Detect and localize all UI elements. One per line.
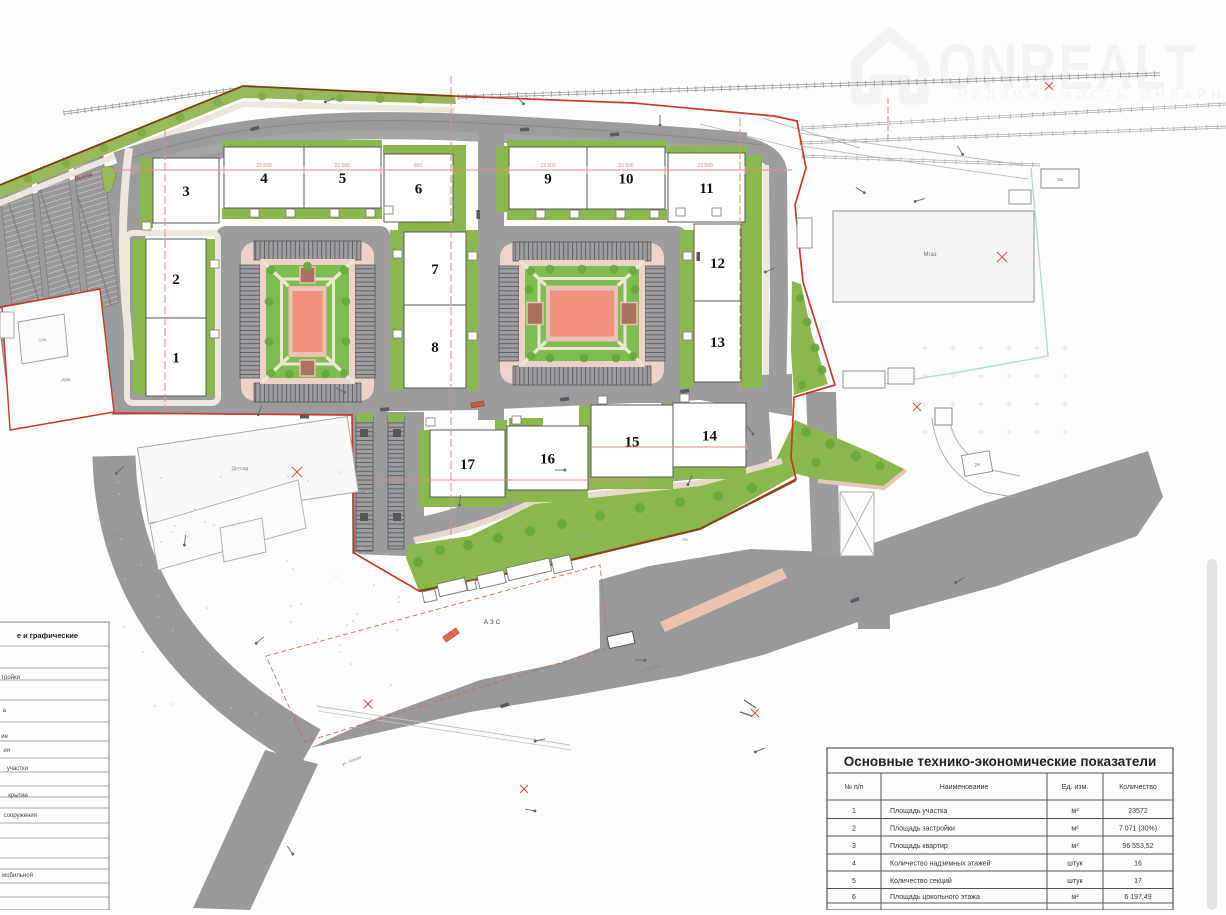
- svg-text:Площадь квартир: Площадь квартир: [890, 843, 948, 850]
- svg-text:1: 1: [172, 350, 180, 366]
- svg-text:Площадь застройки: Площадь застройки: [890, 825, 955, 833]
- svg-text:Площадь цокольного этажа: Площадь цокольного этажа: [890, 894, 980, 901]
- svg-text:Мгаз: Мгаз: [923, 252, 936, 258]
- svg-text:ия: ия: [3, 748, 10, 754]
- svg-text:23 500: 23 500: [256, 163, 272, 169]
- svg-text:11: 11: [699, 181, 713, 197]
- svg-text:7 071 (30%): 7 071 (30%): [1119, 826, 1157, 833]
- svg-text:е и графические: е и графические: [17, 631, 78, 640]
- svg-text:1: 1: [852, 808, 856, 815]
- svg-text:4: 4: [852, 861, 856, 868]
- svg-text:Площадь участка: Площадь участка: [890, 808, 947, 815]
- svg-text:12: 12: [710, 256, 725, 272]
- svg-text:6: 6: [852, 894, 856, 901]
- svg-text:Дом: Дом: [62, 377, 71, 382]
- svg-text:сооружения: сооружения: [4, 813, 37, 819]
- svg-text:10: 10: [619, 171, 634, 187]
- svg-text:16: 16: [540, 451, 556, 467]
- svg-text:Ед. изм.: Ед. изм.: [1062, 784, 1089, 791]
- svg-text:8: 8: [431, 340, 439, 356]
- svg-text:17: 17: [460, 457, 476, 473]
- svg-text:2м: 2м: [974, 462, 980, 468]
- svg-text:штук: штук: [1067, 878, 1083, 885]
- svg-text:600: 600: [414, 163, 423, 169]
- svg-text:Количество секций: Количество секций: [890, 877, 952, 885]
- svg-text:тройки: тройки: [1, 674, 20, 681]
- svg-text:Наименование: Наименование: [940, 784, 989, 791]
- svg-text:15: 15: [625, 434, 640, 450]
- svg-text:23 500: 23 500: [334, 163, 350, 169]
- svg-text:96 553,52: 96 553,52: [1122, 843, 1153, 850]
- svg-text:крытие: крытие: [8, 793, 28, 799]
- svg-text:4: 4: [260, 171, 268, 187]
- svg-text:м²: м²: [1071, 843, 1079, 850]
- svg-text:Количество надземных этажей: Количество надземных этажей: [890, 860, 991, 868]
- svg-text:Детсад: Детсад: [232, 466, 249, 472]
- svg-text:Основные технико-экономические: Основные технико-экономические показател…: [844, 754, 1157, 769]
- svg-text:НЕДВИЖИМОСТЬ ОНЛАЙН: НЕДВИЖИМОСТЬ ОНЛАЙН: [958, 87, 1226, 102]
- svg-text:5: 5: [852, 878, 856, 885]
- svg-text:13: 13: [710, 335, 725, 351]
- svg-text:7: 7: [431, 262, 439, 278]
- svg-text:17: 17: [1134, 878, 1142, 885]
- svg-text:2: 2: [172, 272, 180, 288]
- svg-text:23 500: 23 500: [540, 163, 556, 169]
- svg-text:6: 6: [415, 181, 423, 197]
- svg-text:5: 5: [339, 171, 347, 187]
- svg-text:23572: 23572: [1128, 808, 1148, 815]
- svg-text:А З С: А З С: [484, 619, 501, 626]
- svg-text:сущ.: сущ.: [38, 337, 47, 342]
- svg-text:мобильной: мобильной: [2, 872, 33, 879]
- svg-text:9: 9: [544, 171, 552, 187]
- svg-text:Зм: Зм: [1057, 177, 1063, 182]
- svg-text:16: 16: [1134, 861, 1142, 868]
- svg-text:2: 2: [852, 826, 856, 833]
- svg-text:14: 14: [702, 428, 718, 444]
- svg-text:3: 3: [182, 184, 190, 200]
- svg-text:23 500: 23 500: [697, 163, 713, 169]
- svg-text:2м: 2м: [579, 533, 584, 538]
- svg-text:Зм: Зм: [682, 537, 688, 542]
- svg-text:участки: участки: [7, 766, 28, 772]
- svg-text:3: 3: [852, 843, 856, 850]
- svg-text:м²: м²: [1071, 894, 1079, 901]
- svg-text:штук: штук: [1067, 861, 1083, 868]
- svg-text:6 197,49: 6 197,49: [1124, 894, 1151, 901]
- svg-text:23 500: 23 500: [618, 163, 634, 169]
- svg-text:№ п/п: № п/п: [845, 784, 864, 791]
- svg-text:ие: ие: [1, 734, 8, 740]
- svg-text:м²: м²: [1071, 826, 1079, 833]
- svg-text:Количество: Количество: [1119, 784, 1157, 791]
- svg-text:м²: м²: [1071, 808, 1079, 815]
